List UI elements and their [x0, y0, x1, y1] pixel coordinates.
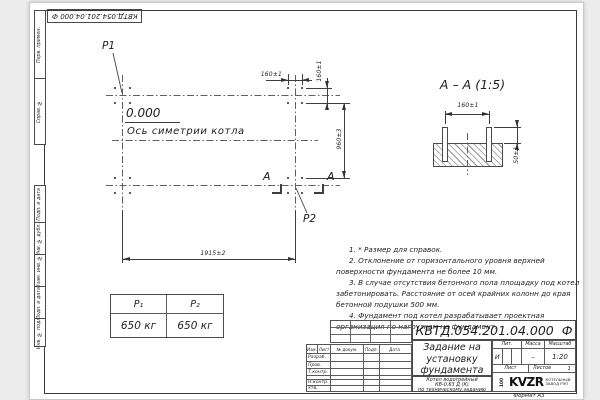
section-centerline — [467, 133, 468, 175]
note-2: 2. Отклонение от горизонтального уровня … — [336, 256, 590, 278]
dim-line — [344, 103, 345, 178]
scale-label: Масштаб — [545, 341, 575, 348]
titleblock-signature-table: Изм. Лист № докум. Подп. Дата Разраб. Пр… — [306, 344, 412, 392]
row-utv: Утв. — [307, 386, 331, 392]
sheets-value: 1 — [568, 365, 572, 372]
format-label: Формат А3 — [499, 393, 559, 399]
section-cut-arrow — [314, 192, 324, 194]
margin-label: Справ. № — [37, 100, 42, 123]
margin-box-vzam-inv: Взам. инв. № — [34, 254, 47, 288]
ext-line — [122, 210, 123, 263]
load-table: P₁ P₂ 650 кг 650 кг — [110, 294, 224, 338]
ext-line — [489, 111, 490, 124]
doc-title-line-1: Задание на — [413, 341, 491, 354]
margin-box-perv-primen: Перв. примен. — [34, 10, 47, 80]
col-ndokum: № докум. — [331, 345, 364, 353]
titleblock-info-grid: Лит. Масса Масштаб И – 1:20 Лист Листов … — [492, 340, 576, 392]
row-tkontr: Т.контр. — [307, 369, 331, 375]
row-blank — [307, 376, 331, 379]
margin-box-inv-dubl: Инв. № дубл. — [34, 222, 47, 256]
dim-arrow — [123, 257, 130, 261]
col-izm: Изм. — [307, 345, 318, 353]
dim-arrow — [302, 78, 309, 82]
dim-arrow — [482, 112, 489, 116]
col-data: Дата — [380, 345, 409, 353]
margin-label: Взам. инв. № — [37, 255, 42, 288]
section-mark-letter-left: А — [263, 170, 271, 183]
dim-160-right: 160±1 — [314, 56, 324, 86]
row-razrab: Разраб. — [307, 354, 331, 361]
logo-sub-2: ЗАВОД РЭП — [546, 382, 571, 386]
lit-value: И — [493, 349, 503, 364]
dim-arrow — [445, 112, 452, 116]
load-point-p2-label: P2 — [303, 213, 316, 225]
sheet-label: Лист — [493, 365, 529, 372]
row-nkontr: Н.контр. — [307, 380, 331, 385]
doc-title-line-2: установку — [413, 354, 491, 366]
centerline-top-row — [106, 95, 340, 96]
margin-box-podp-data-2: Подп. и дата — [34, 286, 47, 320]
margin-label: Перв. примен. — [37, 27, 42, 63]
top-stamp-text: КВТД.054.201.04.000 Ф — [52, 12, 138, 20]
section-dim-160: 160±1 — [450, 102, 486, 109]
margin-label: Инв. № дубл. — [37, 223, 42, 256]
top-stamp-box: КВТД.054.201.04.000 Ф — [47, 9, 142, 23]
doc-title-line-3: фундамента — [413, 365, 491, 377]
mass-value: – — [522, 349, 545, 364]
dim-160-top: 160±1 — [250, 71, 282, 78]
drawing-sheet: Перв. примен. Справ. № Подп. и дата Инв.… — [0, 0, 600, 400]
margin-box-sprav-n: Справ. № — [34, 78, 47, 145]
anchor-bolt-left — [442, 127, 448, 162]
margin-label: Подп. и дата — [37, 287, 42, 320]
centerline-bottom-row — [106, 185, 340, 186]
centerline-left-col — [122, 75, 123, 210]
elevation-label: 0.000 — [126, 106, 160, 120]
section-view-title: А – А (1:5) — [425, 77, 520, 92]
col-podp: Подп. — [364, 345, 380, 353]
dim-1915: 1915±2 — [193, 250, 233, 257]
note-1: 1. * Размер для справок. — [336, 245, 590, 256]
product-line-3: по техническому заданию — [413, 388, 491, 393]
dim-arrow — [281, 78, 288, 82]
load-table-value-p1: 650 кг — [111, 314, 167, 337]
section-cut-arrow — [272, 192, 282, 194]
dim-arrow — [515, 120, 519, 127]
margin-box-podp-data-1: Подп. и дата — [34, 185, 47, 224]
revision-spare-grid — [330, 320, 412, 343]
note-3: 3. В случае отсутствия бетонного пола пл… — [336, 278, 590, 311]
load-table-value-p2: 650 кг — [167, 314, 223, 337]
titleblock-doc-title: Задание на установку фундамента — [412, 340, 492, 376]
margin-label: Инв. № подл. — [37, 316, 42, 349]
load-table-header-p1: P₁ — [111, 295, 167, 313]
section-mark-letter-right: А — [327, 170, 335, 183]
margin-label: Подп. и дата — [37, 188, 42, 221]
ext-line — [306, 88, 332, 89]
row-prov: Пров. — [307, 362, 331, 368]
dim-line — [122, 259, 295, 260]
load-table-header-p2: P₂ — [167, 295, 223, 313]
logo-mark: 100 — [500, 377, 505, 386]
scale-value: 1:20 — [545, 349, 575, 364]
titleblock-designation: КВТД.054.201.04.000 Ф — [412, 320, 576, 340]
axis-label: Ось симетрии котла — [127, 126, 245, 137]
section-dim-50: 50±1 — [511, 141, 521, 169]
dim-arrow — [325, 103, 329, 110]
ext-line — [295, 210, 296, 263]
margin-box-inv-podl: Инв. № подл. — [34, 318, 47, 347]
logo-text: KVZR — [509, 375, 544, 389]
dim-960: 960±3 — [334, 122, 344, 156]
sheets-label: Листов — [533, 365, 551, 372]
load-point-p1-label: P1 — [102, 40, 115, 52]
boiler-symmetry-axis-line — [112, 140, 318, 141]
designation-text: КВТД.054.201.04.000 Ф — [416, 323, 573, 338]
centerline-right-col — [295, 75, 296, 210]
dim-arrow — [288, 257, 295, 261]
anchor-bolt-right — [486, 127, 492, 162]
titleblock-product: Котел водогрейный КВ-0,63 Д (К) по техни… — [412, 376, 492, 392]
elevation-underline — [125, 122, 180, 123]
company-logo: 100 KVZR КОТЕЛЬНЫЙ ЗАВОД РЭП — [493, 373, 575, 391]
mass-label: Масса — [522, 341, 545, 348]
lit-label: Лит. — [493, 341, 522, 348]
col-list: Лист — [318, 345, 331, 353]
dim-arrow — [325, 81, 329, 88]
dim-arrow — [342, 103, 346, 110]
dim-arrow — [342, 171, 346, 178]
